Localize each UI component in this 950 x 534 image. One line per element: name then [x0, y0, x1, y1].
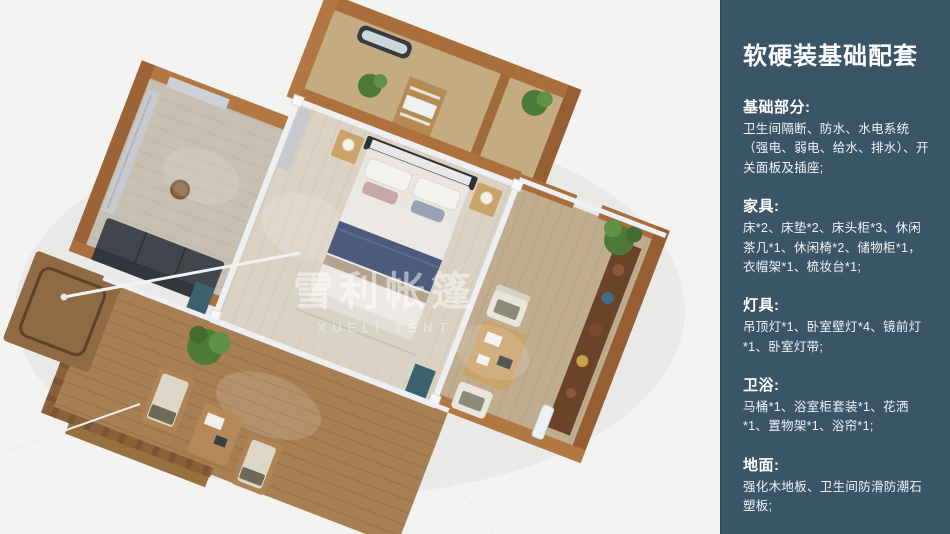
- section-bathroom: 卫浴: 马桶*1、浴室柜套装*1、花洒*1、置物架*1、浴帘*1;: [743, 374, 930, 437]
- section-lighting: 灯具: 吊顶灯*1、卧室壁灯*4、镜前灯*1、卧室灯带;: [743, 294, 930, 357]
- section-basics-heading: 基础部分:: [743, 96, 930, 117]
- section-furniture-body: 床*2、床垫*2、床头柜*3、休闲茶几*1、休闲椅*2、储物柜*1，衣帽架*1、…: [743, 219, 930, 277]
- floorplan-illustration: 雪利帐篷 XUELI TENT: [0, 0, 720, 534]
- tent-pole-cap: [61, 294, 68, 301]
- watermark: 雪利帐篷 XUELI TENT: [293, 270, 477, 335]
- section-flooring-body: 强化木地板、卫生间防滑防潮石塑板;: [743, 478, 930, 517]
- section-flooring-heading: 地面:: [743, 454, 930, 475]
- section-furniture-heading: 家具:: [743, 195, 930, 216]
- section-lighting-body: 吊顶灯*1、卧室壁灯*4、镜前灯*1、卧室灯带;: [743, 318, 930, 357]
- section-flooring: 地面: 强化木地板、卫生间防滑防潮石塑板;: [743, 454, 930, 517]
- section-basics: 基础部分: 卫生间隔断、防水、水电系统（强电、弱电、给水、排水）、开关面板及插座…: [743, 96, 930, 178]
- render-canvas: 雪利帐篷 XUELI TENT: [0, 0, 720, 534]
- section-bathroom-heading: 卫浴:: [743, 374, 930, 395]
- watermark-cn: 雪利帐篷: [293, 270, 477, 314]
- section-basics-body: 卫生间隔断、防水、水电系统（强电、弱电、给水、排水）、开关面板及插座;: [743, 120, 930, 178]
- section-furniture: 家具: 床*2、床垫*2、床头柜*3、休闲茶几*1、休闲椅*2、储物柜*1，衣帽…: [743, 195, 930, 277]
- section-bathroom-body: 马桶*1、浴室柜套装*1、花洒*1、置物架*1、浴帘*1;: [743, 398, 930, 437]
- watermark-en: XUELI TENT: [318, 320, 453, 335]
- section-lighting-heading: 灯具:: [743, 294, 930, 315]
- guy-wire-right: [452, 478, 494, 534]
- slide: 雪利帐篷 XUELI TENT 软硬装基础配套 基础部分: 卫生间隔断、防水、水…: [0, 0, 950, 534]
- info-sidebar: 软硬装基础配套 基础部分: 卫生间隔断、防水、水电系统（强电、弱电、给水、排水）…: [720, 0, 950, 534]
- sidebar-title: 软硬装基础配套: [743, 42, 930, 72]
